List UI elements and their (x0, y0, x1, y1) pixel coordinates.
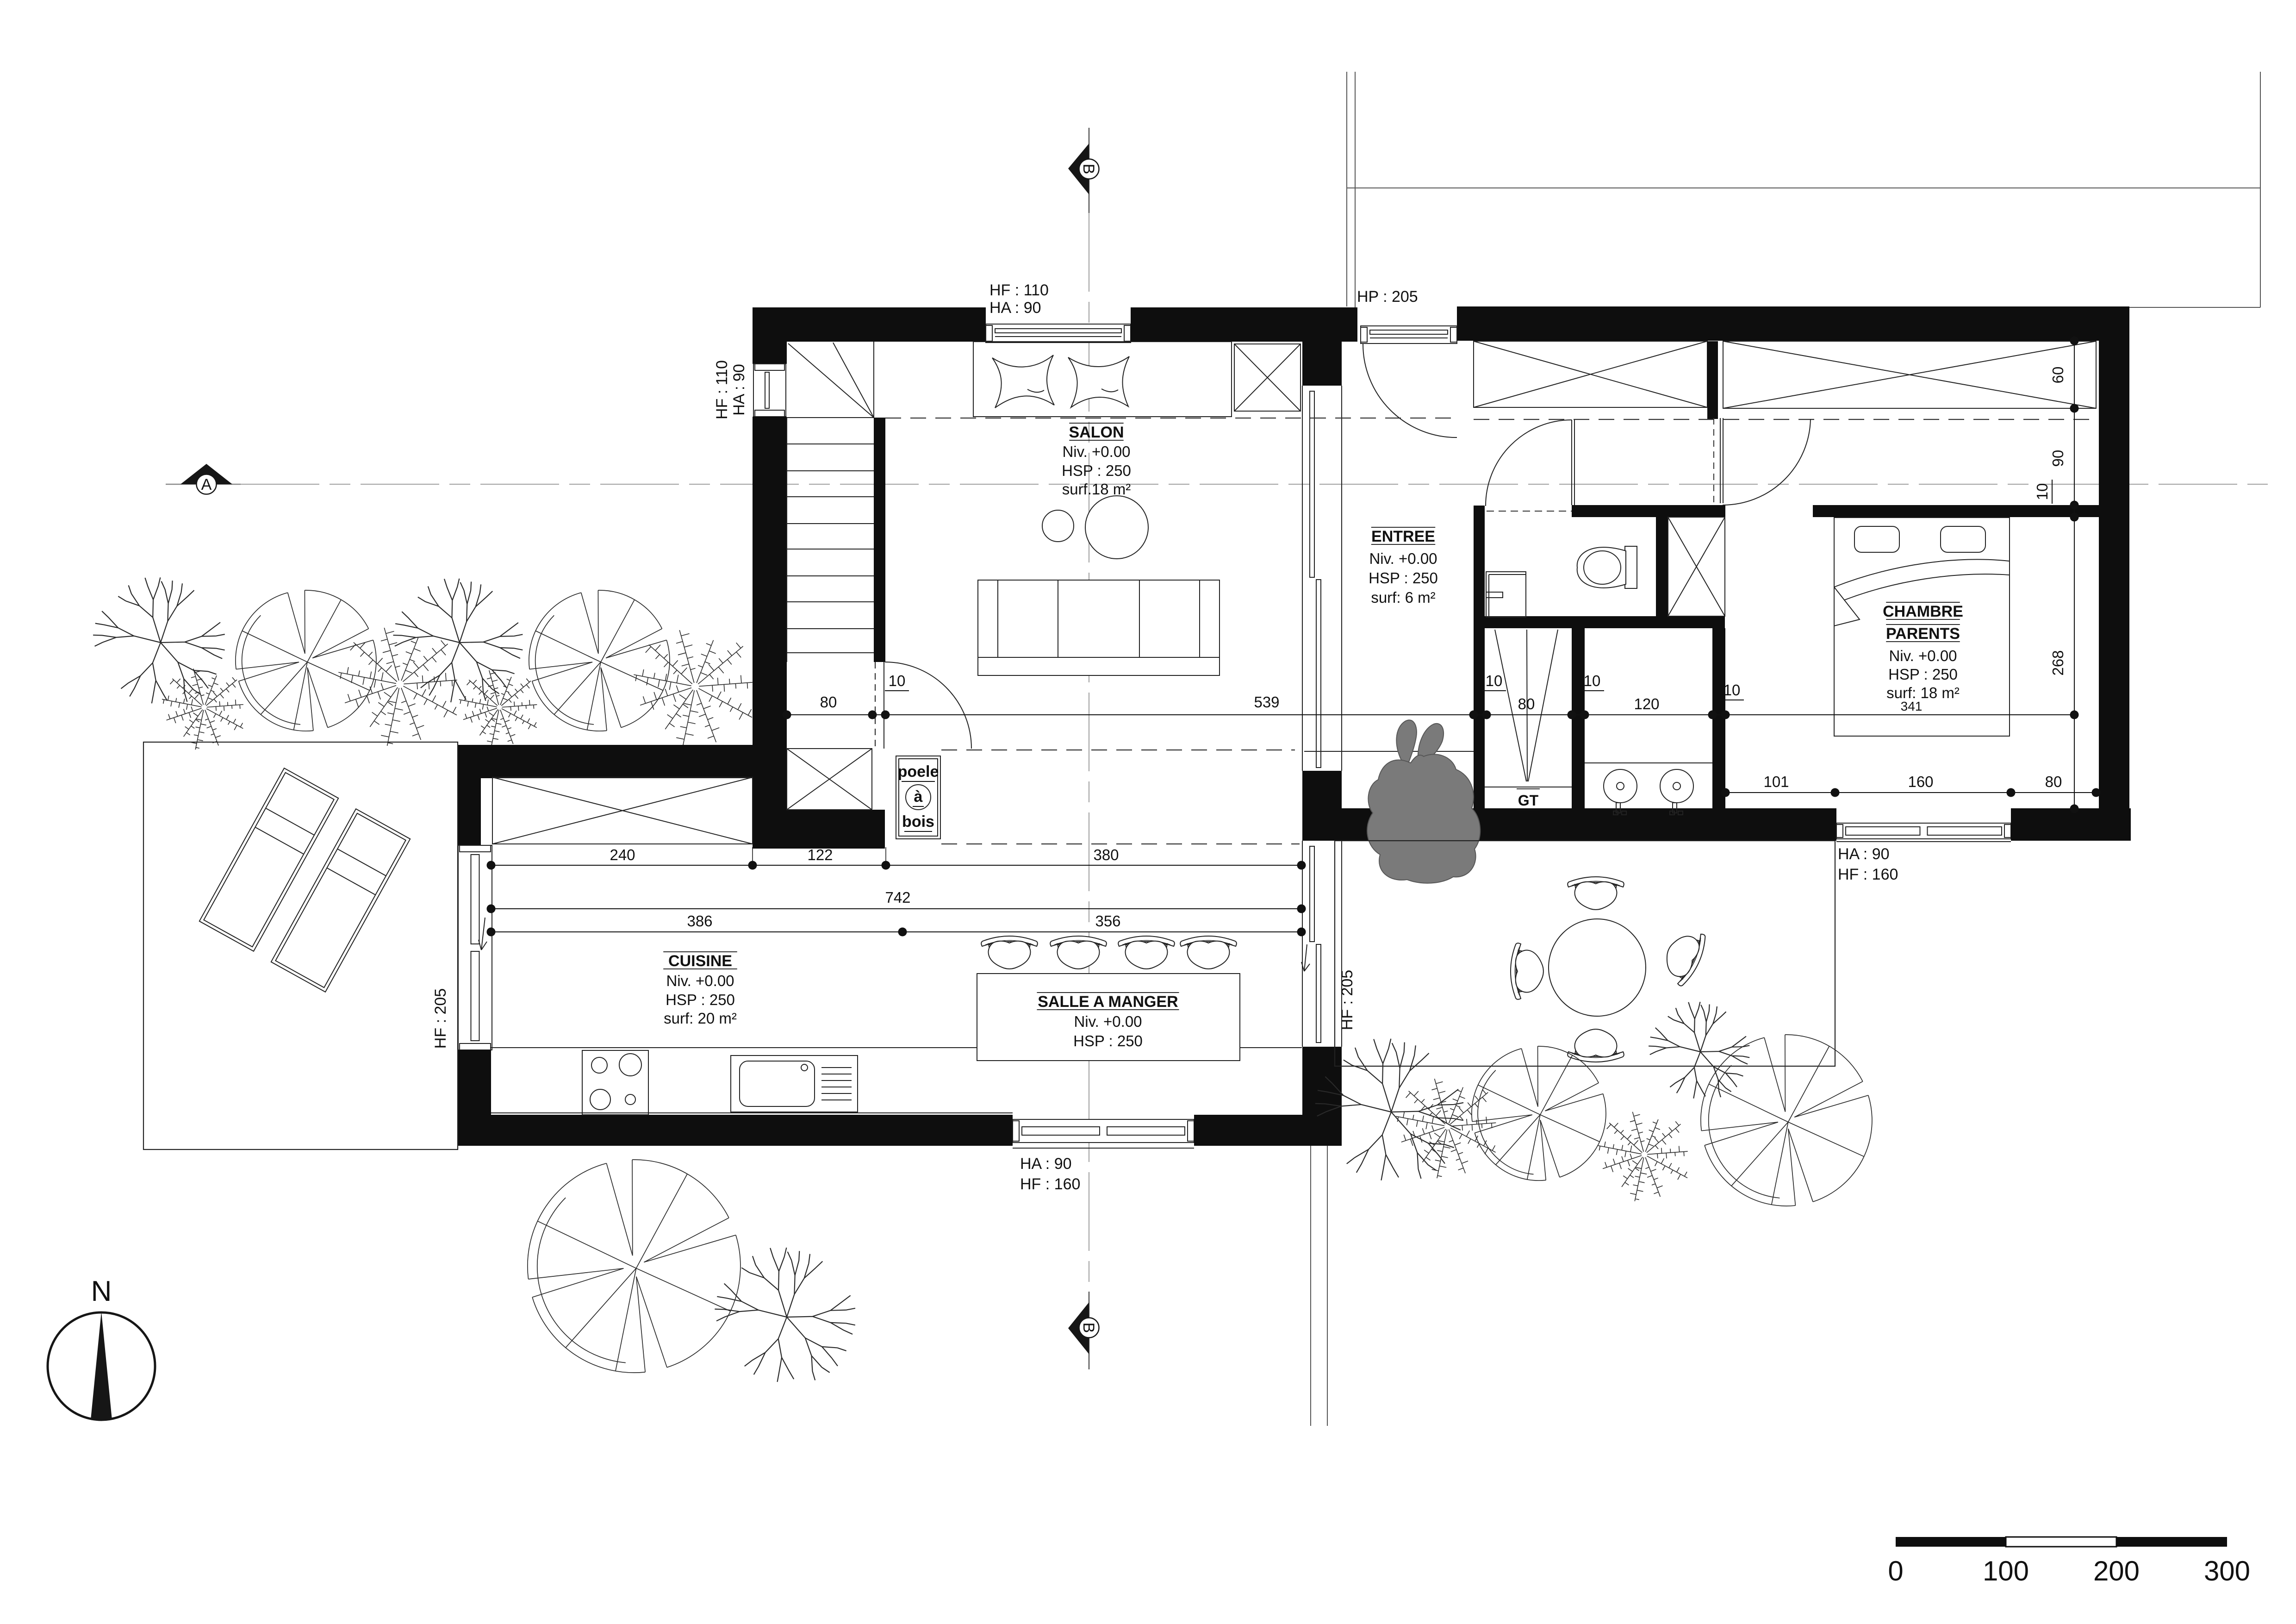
svg-text:HF : 110: HF : 110 (989, 281, 1049, 299)
svg-text:10: 10 (2034, 483, 2051, 500)
svg-text:surf.18 m²: surf.18 m² (1062, 481, 1131, 498)
svg-text:CUISINE: CUISINE (668, 952, 732, 970)
svg-text:200: 200 (2093, 1555, 2140, 1587)
svg-text:742: 742 (885, 889, 910, 906)
svg-text:bois: bois (902, 813, 934, 831)
svg-text:ENTREE: ENTREE (1371, 528, 1435, 545)
svg-text:HSP : 250: HSP : 250 (1888, 666, 1958, 683)
svg-text:HSP : 250: HSP : 250 (1073, 1032, 1143, 1049)
svg-text:160: 160 (1908, 773, 1933, 790)
svg-text:386: 386 (687, 912, 712, 930)
svg-text:268: 268 (2049, 650, 2066, 675)
svg-text:SALON: SALON (1069, 424, 1124, 441)
svg-text:240: 240 (610, 846, 635, 863)
svg-text:HSP : 250: HSP : 250 (1062, 462, 1131, 479)
svg-text:HSP : 250: HSP : 250 (666, 991, 735, 1008)
svg-text:HF : 205: HF : 205 (432, 988, 449, 1049)
svg-text:539: 539 (1254, 693, 1279, 711)
svg-text:B: B (1080, 1323, 1097, 1333)
svg-text:HSP : 250: HSP : 250 (1369, 569, 1438, 587)
svg-text:Niv. +0.00: Niv. +0.00 (666, 972, 734, 989)
svg-text:HA : 90: HA : 90 (730, 364, 748, 416)
svg-text:A: A (201, 476, 212, 493)
svg-text:surf: 6 m²: surf: 6 m² (1371, 589, 1435, 606)
svg-text:B: B (1080, 164, 1097, 175)
svg-text:60: 60 (2049, 367, 2066, 384)
svg-text:HF : 205: HF : 205 (1338, 970, 1356, 1030)
svg-text:HF : 160: HF : 160 (1020, 1175, 1080, 1193)
svg-text:356: 356 (1095, 912, 1120, 930)
svg-text:90: 90 (2049, 450, 2066, 467)
svg-text:80: 80 (2045, 773, 2062, 790)
svg-text:SALLE A MANGER: SALLE A MANGER (1038, 993, 1178, 1011)
svg-text:101: 101 (1763, 773, 1789, 790)
svg-text:380: 380 (1093, 846, 1119, 863)
svg-text:Niv. +0.00: Niv. +0.00 (1062, 443, 1130, 460)
svg-text:CHAMBRE: CHAMBRE (1883, 603, 1963, 620)
svg-text:Niv. +0.00: Niv. +0.00 (1074, 1013, 1142, 1030)
svg-text:GT: GT (1518, 792, 1539, 809)
svg-text:80: 80 (1518, 695, 1535, 712)
svg-text:120: 120 (1634, 695, 1659, 712)
svg-text:N: N (91, 1275, 112, 1307)
svg-text:surf: 20 m²: surf: 20 m² (664, 1010, 737, 1027)
svg-text:HA : 90: HA : 90 (989, 299, 1041, 317)
svg-text:Niv. +0.00: Niv. +0.00 (1889, 647, 1957, 664)
svg-text:à: à (914, 788, 923, 806)
svg-text:HA : 90: HA : 90 (1838, 845, 1890, 863)
svg-text:10: 10 (1486, 672, 1503, 689)
svg-text:PARENTS: PARENTS (1886, 625, 1960, 643)
svg-text:HP : 205: HP : 205 (1357, 288, 1418, 306)
svg-text:Niv. +0.00: Niv. +0.00 (1369, 550, 1437, 567)
svg-text:surf: 18 m²: surf: 18 m² (1886, 684, 1960, 701)
svg-text:HA : 90: HA : 90 (1020, 1155, 1072, 1173)
svg-text:10: 10 (1584, 672, 1601, 689)
svg-text:10: 10 (889, 672, 906, 689)
svg-text:100: 100 (1983, 1555, 2029, 1587)
svg-text:0: 0 (1888, 1555, 1903, 1587)
svg-text:80: 80 (820, 693, 837, 711)
svg-text:poele: poele (898, 763, 939, 781)
svg-text:HF : 110: HF : 110 (713, 360, 731, 419)
svg-text:10: 10 (1724, 681, 1741, 699)
svg-text:341: 341 (1901, 699, 1923, 713)
svg-text:122: 122 (807, 846, 833, 863)
svg-text:300: 300 (2204, 1555, 2250, 1587)
svg-text:HF : 160: HF : 160 (1838, 866, 1898, 883)
